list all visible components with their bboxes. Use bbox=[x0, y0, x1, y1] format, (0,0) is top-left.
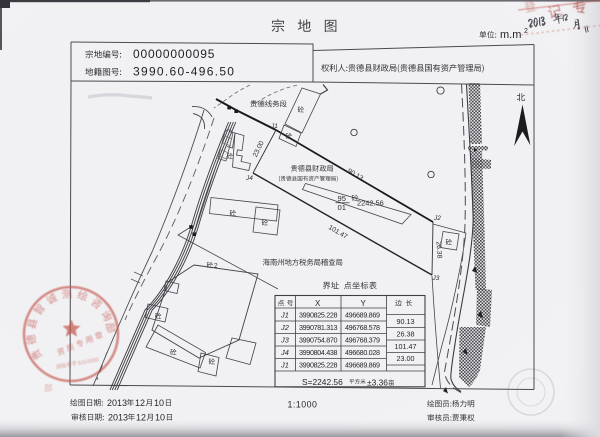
svg-text:496768.379: 496768.379 bbox=[345, 336, 380, 345]
svg-text:J3: J3 bbox=[432, 275, 440, 282]
svg-text:X: X bbox=[315, 299, 321, 308]
svg-text:26.38: 26.38 bbox=[397, 330, 415, 339]
svg-text:J3: J3 bbox=[280, 336, 290, 345]
svg-text:2013: 2013 bbox=[107, 398, 127, 408]
svg-text:00000000095: 00000000095 bbox=[133, 47, 215, 61]
svg-text:10: 10 bbox=[154, 398, 164, 408]
svg-text:3990781.313: 3990781.313 bbox=[299, 323, 338, 332]
svg-text:1:1000: 1:1000 bbox=[288, 400, 318, 410]
svg-text:2013: 2013 bbox=[108, 413, 128, 423]
svg-text:12: 12 bbox=[136, 413, 146, 423]
svg-text:3990825.228: 3990825.228 bbox=[299, 361, 338, 370]
svg-text:S=2242.56: S=2242.56 bbox=[302, 377, 343, 387]
svg-text:3990754.870: 3990754.870 bbox=[299, 336, 338, 345]
svg-text:3990.60-496.50: 3990.60-496.50 bbox=[133, 65, 235, 79]
svg-text:J1: J1 bbox=[280, 311, 289, 320]
svg-text:10: 10 bbox=[155, 413, 165, 423]
svg-text:J2: J2 bbox=[280, 323, 289, 332]
svg-text:J4: J4 bbox=[245, 175, 253, 182]
svg-text:Y: Y bbox=[361, 299, 367, 308]
svg-text:90.13: 90.13 bbox=[397, 317, 415, 326]
svg-text:m.m: m.m bbox=[500, 29, 521, 41]
svg-text:±3.36: ±3.36 bbox=[367, 378, 388, 388]
svg-text:3990804.438: 3990804.438 bbox=[299, 348, 338, 357]
svg-text:3990825.228: 3990825.228 bbox=[299, 311, 338, 320]
svg-text:2: 2 bbox=[214, 263, 218, 270]
svg-text:J1: J1 bbox=[280, 361, 289, 370]
svg-text:23.00: 23.00 bbox=[397, 354, 415, 363]
svg-text:J4: J4 bbox=[280, 348, 289, 357]
svg-text:496768.578: 496768.578 bbox=[345, 323, 380, 332]
svg-text:101.47: 101.47 bbox=[395, 342, 417, 351]
svg-text:496689.869: 496689.869 bbox=[345, 361, 380, 370]
svg-text:01: 01 bbox=[338, 203, 346, 212]
svg-text:95: 95 bbox=[338, 194, 346, 203]
svg-text:496680.028: 496680.028 bbox=[345, 348, 380, 357]
svg-text:2242.56: 2242.56 bbox=[357, 199, 384, 208]
svg-text:J2: J2 bbox=[433, 215, 441, 222]
svg-text:12: 12 bbox=[135, 398, 145, 408]
svg-text:J1: J1 bbox=[270, 123, 278, 130]
svg-text:496689.869: 496689.869 bbox=[345, 311, 380, 320]
